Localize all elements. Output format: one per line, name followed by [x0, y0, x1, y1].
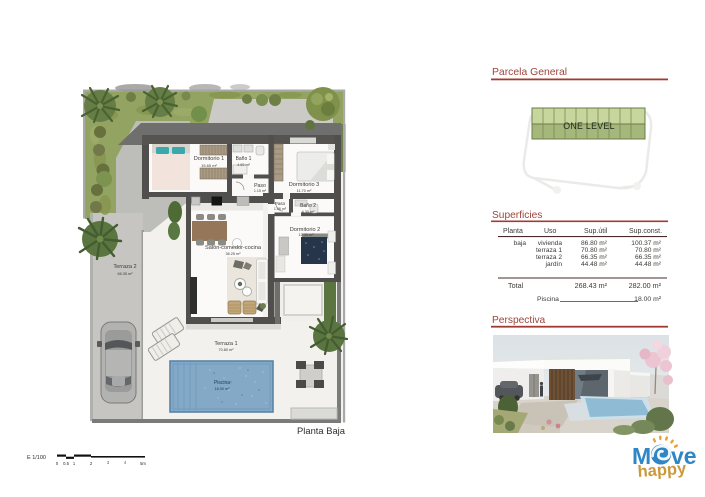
svg-text:Planta: Planta [503, 228, 523, 235]
svg-text:4.65 m²: 4.65 m² [237, 163, 251, 167]
svg-text:66.35 m²: 66.35 m² [118, 272, 134, 276]
svg-text:12.05 m²: 12.05 m² [299, 233, 315, 237]
svg-text:Parcela General: Parcela General [492, 67, 567, 78]
svg-text:terraza 1: terraza 1 [536, 247, 562, 254]
svg-text:70.80 m²: 70.80 m² [581, 247, 608, 254]
svg-text:1.06 m²: 1.06 m² [274, 207, 287, 211]
svg-text:Baño 2: Baño 2 [300, 203, 316, 209]
svg-text:18.00 m²: 18.00 m² [215, 387, 231, 391]
svg-text:18.00 m²: 18.00 m² [634, 296, 662, 303]
svg-text:66.35 m²: 66.35 m² [581, 254, 608, 261]
svg-text:Superficies: Superficies [492, 210, 542, 221]
svg-text:Dormitorio 1: Dormitorio 1 [194, 156, 224, 162]
svg-text:E 1/100: E 1/100 [27, 455, 46, 461]
svg-text:0: 0 [56, 461, 59, 466]
svg-text:vivienda: vivienda [538, 240, 563, 247]
svg-text:Perspectiva: Perspectiva [492, 315, 546, 326]
svg-text:70.80 m²: 70.80 m² [635, 247, 662, 254]
svg-text:2: 2 [90, 461, 93, 466]
svg-text:1: 1 [73, 461, 76, 466]
svg-text:Terraza 2: Terraza 2 [113, 264, 136, 270]
svg-text:44.48 m²: 44.48 m² [635, 261, 662, 268]
svg-text:0.5: 0.5 [63, 461, 69, 466]
svg-text:Uso: Uso [544, 228, 557, 235]
svg-text:happy: happy [637, 460, 688, 481]
svg-text:66.35 m²: 66.35 m² [635, 254, 662, 261]
svg-text:100.37 m²: 100.37 m² [631, 240, 661, 247]
svg-text:11.70 m²: 11.70 m² [297, 189, 312, 193]
svg-text:Terraza 1: Terraza 1 [214, 341, 237, 347]
svg-text:86.80 m²: 86.80 m² [581, 240, 608, 247]
svg-text:Salón-comedor-cocina: Salón-comedor-cocina [205, 245, 262, 251]
svg-text:Piscina: Piscina [214, 380, 230, 386]
svg-text:4.30 m²: 4.30 m² [302, 210, 316, 214]
svg-text:1.15 m²: 1.15 m² [254, 189, 267, 193]
svg-text:36.25 m²: 36.25 m² [226, 252, 242, 256]
svg-text:5m: 5m [140, 461, 146, 466]
svg-text:Piscina: Piscina [537, 296, 559, 303]
svg-text:Total: Total [508, 281, 524, 290]
svg-text:3: 3 [107, 460, 110, 465]
svg-text:baja: baja [514, 240, 527, 247]
svg-text:Dormitorio 3: Dormitorio 3 [289, 182, 319, 188]
svg-text:268.43 m²: 268.43 m² [575, 281, 608, 290]
svg-text:Sup.const.: Sup.const. [629, 228, 662, 235]
svg-text:15.65 m²: 15.65 m² [201, 163, 217, 168]
svg-text:ONE LEVEL: ONE LEVEL [563, 121, 615, 131]
svg-text:jardín: jardín [545, 261, 563, 268]
svg-text:44.48 m²: 44.48 m² [581, 261, 608, 268]
svg-text:Paso: Paso [275, 201, 286, 206]
svg-text:terraza 2: terraza 2 [536, 254, 562, 261]
svg-text:4: 4 [124, 460, 127, 465]
svg-text:Planta Baja: Planta Baja [297, 425, 346, 436]
svg-text:282.00 m²: 282.00 m² [629, 281, 662, 290]
svg-text:Baño 1: Baño 1 [236, 156, 252, 162]
svg-text:70.80 m²: 70.80 m² [219, 348, 235, 352]
svg-text:Sup.útil: Sup.útil [584, 228, 608, 235]
